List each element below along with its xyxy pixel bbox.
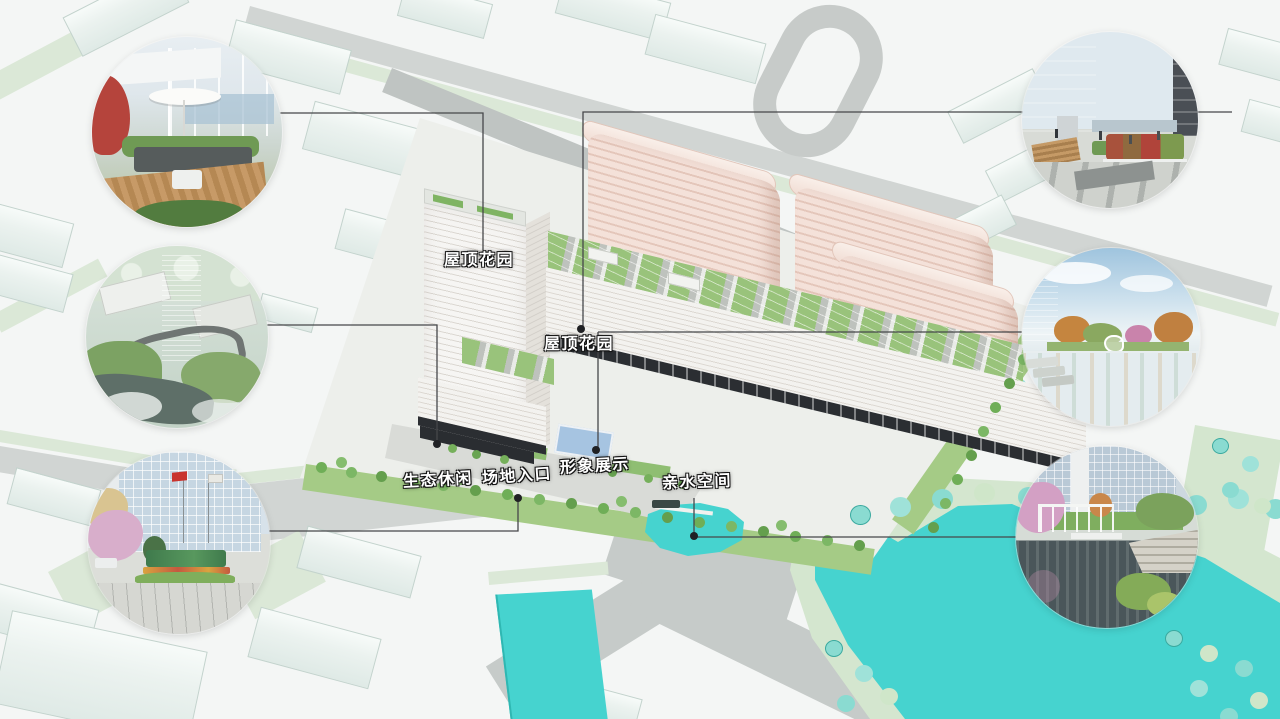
inset-photo-pond-park (1022, 248, 1200, 426)
connector-dot (592, 446, 600, 454)
red-flag (172, 471, 187, 482)
inset-photo-rooftop-terrace (92, 37, 282, 227)
photo-fragment (172, 170, 202, 189)
inset-photo-waterfront-canal (1016, 446, 1198, 628)
photo-fragment (1027, 570, 1060, 603)
photo-fragment (1071, 533, 1122, 538)
photo-fragment (88, 510, 143, 561)
connector-dot (690, 532, 698, 540)
photo-fragment (1120, 275, 1173, 293)
masterplan-diagram: 屋顶花园 屋顶花园 生态休闲 场地入口 形象展示 亲水空间 (0, 0, 1280, 719)
connector-line (598, 332, 1022, 448)
photo-fragment (101, 392, 163, 421)
connector-line (694, 498, 1016, 537)
photo-fragment (1136, 493, 1194, 529)
photo-fragment (134, 200, 244, 227)
connector-line (270, 113, 483, 250)
photo-fragment (88, 583, 270, 634)
callout-label-roof-garden-tower: 屋顶花园 (444, 253, 514, 269)
photo-fragment (146, 550, 226, 566)
photo-fragment (1106, 134, 1183, 160)
photo-fragment (1022, 280, 1058, 344)
connector-line (262, 500, 518, 531)
callout-label-roof-garden-podium: 屋顶花园 (544, 337, 614, 353)
connector-dot (577, 325, 585, 333)
connector-line (262, 325, 437, 441)
white-flag (208, 474, 223, 483)
inset-photo-aerial-towers (86, 246, 268, 428)
connector-dot (514, 494, 522, 502)
flag-pole (183, 474, 184, 543)
inset-photo-elevated-plaza (1022, 32, 1198, 208)
connector-dot (433, 440, 441, 448)
photo-fragment (1092, 120, 1176, 132)
person-figure (1099, 131, 1102, 140)
photo-fragment (1071, 446, 1089, 512)
photo-fragment (1173, 39, 1198, 136)
flag-pole (208, 476, 209, 543)
pergola (1038, 504, 1114, 531)
callout-label-waterfront-space: 亲水空间 (662, 474, 733, 492)
photo-fragment (95, 558, 117, 569)
inset-photo-entrance-plaza (88, 452, 270, 634)
photo-fragment (1154, 312, 1193, 344)
